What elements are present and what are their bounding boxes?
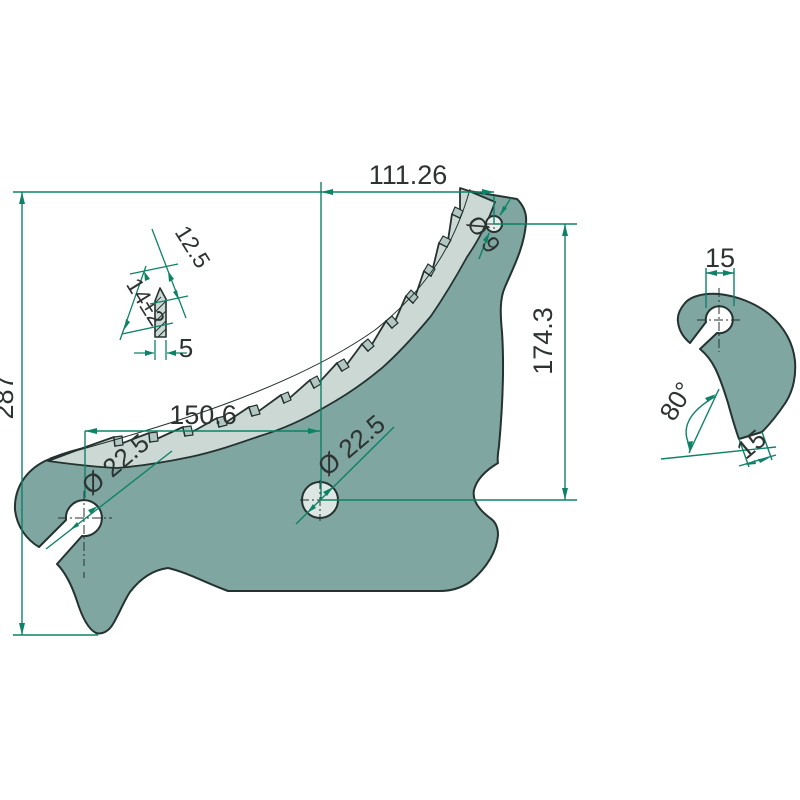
side-view [661,268,795,467]
dim-side-angle: 80° [653,377,699,426]
dim-tip-hole-height: 174.3 [528,307,558,375]
dim-overall-height: 287 [0,374,19,419]
dim-hole-spacing: 150.6 [169,400,237,430]
dim-tip-offset-width: 111.26 [369,160,448,190]
dim-tooth-width: 5 [179,333,193,363]
main-view [15,188,526,634]
blade-technical-drawing: 287 111.26 174.3 150.6 Ø 22.5 Ø 22.5 Ø 9… [0,0,800,800]
drawing-canvas: 287 111.26 174.3 150.6 Ø 22.5 Ø 22.5 Ø 9… [0,0,800,800]
side-profile-body [678,294,795,439]
dim-side-hole-width: 15 [705,243,735,273]
